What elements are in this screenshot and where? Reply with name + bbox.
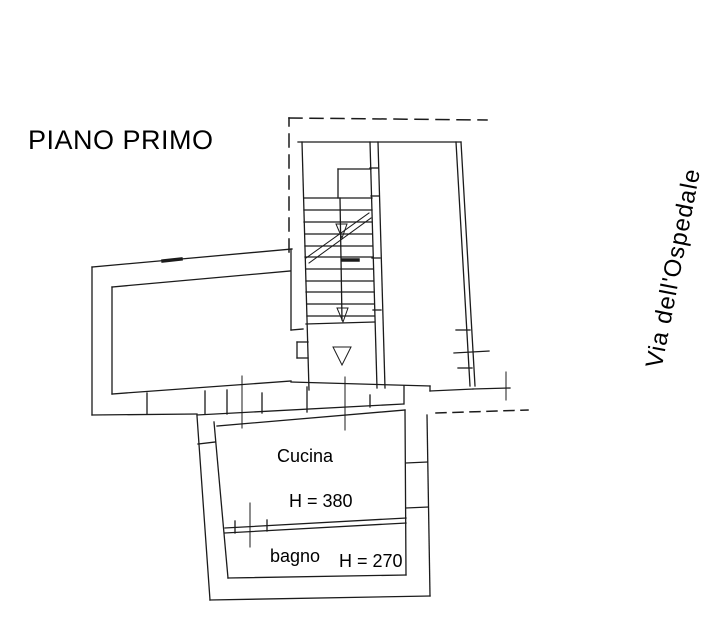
window-tick (406, 462, 427, 463)
landing-triangle-marker (333, 347, 351, 365)
corridor-walls (197, 372, 510, 430)
floor-plan-drawing: PIANO PRIMO Cucina H = 380 bagno H = 270… (0, 0, 721, 641)
window-tick (454, 351, 489, 353)
floor-title: PIANO PRIMO (28, 125, 214, 155)
kitchen-label: Cucina (277, 446, 334, 466)
bathroom-label: bagno (270, 546, 320, 566)
boundary-dashed-lines (289, 118, 528, 413)
floorplan-page: PIANO PRIMO Cucina H = 380 bagno H = 270… (0, 0, 721, 641)
plan-linework (92, 118, 528, 600)
street-name-label: Via dell'Ospedale (641, 166, 706, 370)
bathroom-height-label: H = 270 (339, 551, 403, 571)
right-wing-walls (454, 142, 489, 386)
stair-direction-arrow (306, 213, 371, 322)
staircase (298, 142, 461, 390)
kitchen-height-label: H = 380 (289, 491, 353, 511)
left-room-walls (92, 249, 308, 428)
window-tick (406, 507, 428, 508)
